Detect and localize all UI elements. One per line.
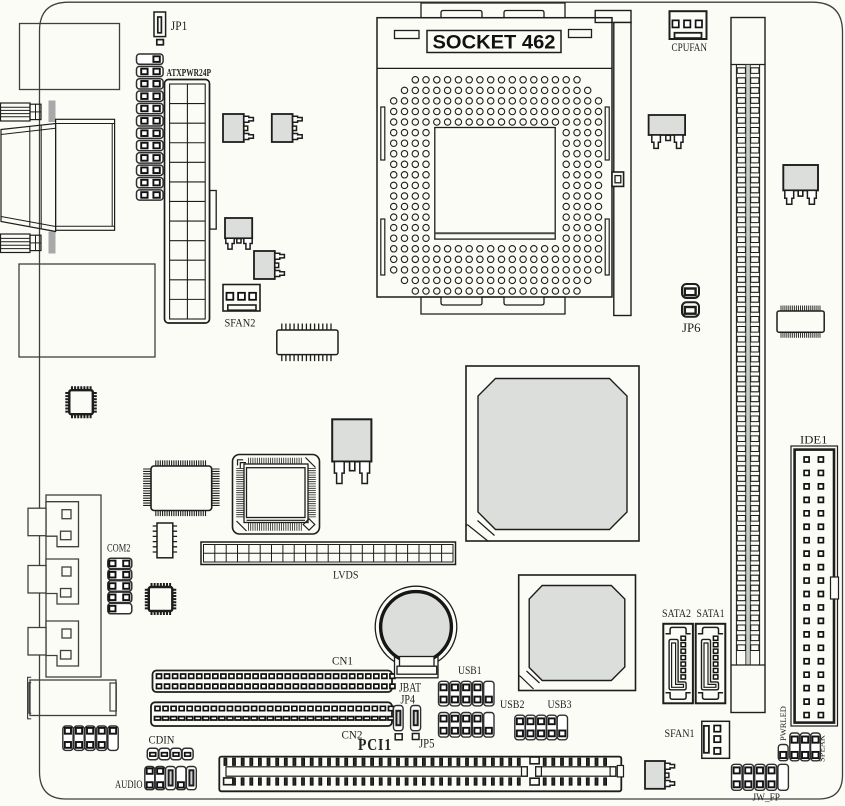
svg-text:PWRLED: PWRLED: [778, 706, 788, 741]
svg-text:SFAN2: SFAN2: [225, 318, 256, 330]
svg-text:CN1: CN1: [332, 654, 353, 668]
svg-text:AUDIO: AUDIO: [115, 779, 143, 791]
svg-text:USB3: USB3: [548, 697, 572, 711]
svg-text:SFAN1: SFAN1: [665, 728, 695, 740]
svg-text:COM2: COM2: [107, 543, 131, 555]
svg-text:SATA1: SATA1: [697, 608, 725, 620]
svg-text:JW_FP: JW_FP: [753, 792, 781, 804]
svg-text:PCI1: PCI1: [358, 735, 392, 754]
svg-text:JP4: JP4: [401, 693, 416, 707]
svg-text:USB1: USB1: [458, 663, 482, 677]
svg-text:LVDS: LVDS: [333, 570, 359, 582]
svg-text:USB2: USB2: [500, 697, 525, 711]
svg-text:ATXPWR24P: ATXPWR24P: [167, 68, 212, 79]
svg-text:CDIN: CDIN: [149, 733, 175, 747]
svg-text:SATA2: SATA2: [662, 608, 691, 620]
svg-text:IDE1: IDE1: [800, 433, 828, 447]
svg-text:CN2: CN2: [342, 728, 363, 742]
svg-text:JP5: JP5: [419, 737, 435, 751]
svg-text:CPUFAN: CPUFAN: [672, 42, 708, 54]
svg-text:JP6: JP6: [682, 321, 701, 335]
svg-text:SOCKET 462: SOCKET 462: [433, 33, 556, 54]
svg-text:JP1: JP1: [171, 19, 188, 33]
